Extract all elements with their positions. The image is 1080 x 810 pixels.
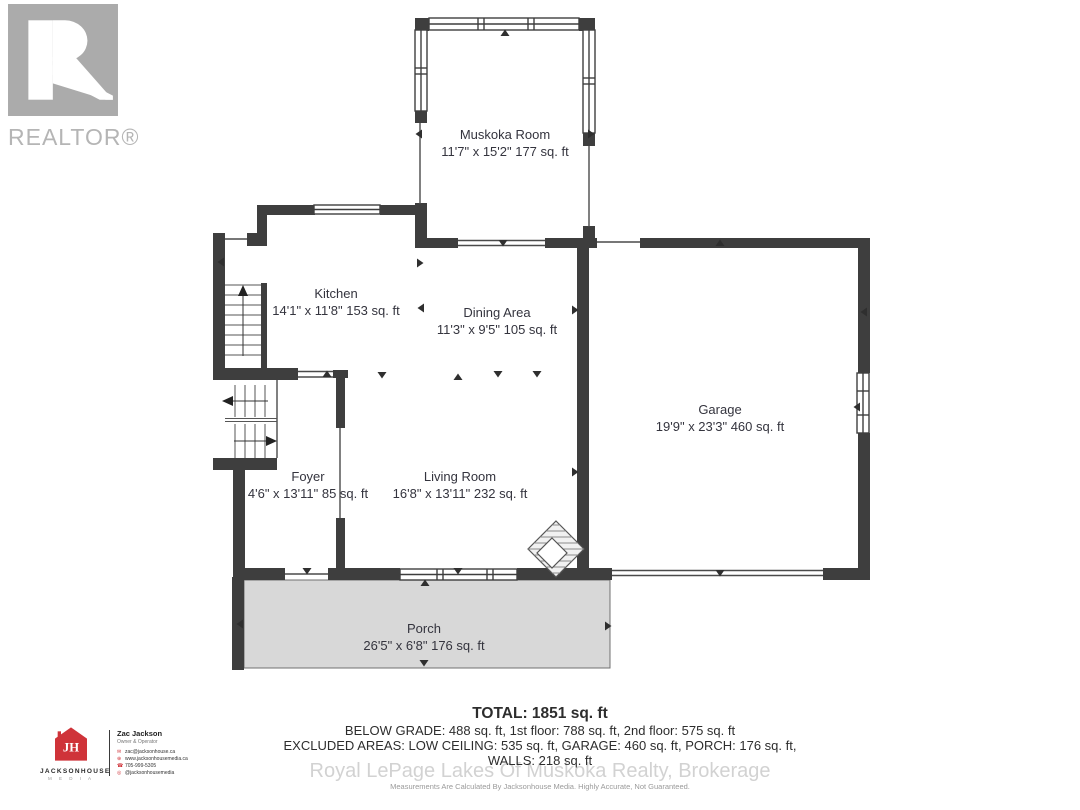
garage-label: Garage (698, 402, 741, 417)
porch-dims: 26'5" x 6'8" 176 sq. ft (363, 638, 485, 653)
door-openings (225, 123, 823, 576)
garage-dims: 19'9" x 23'3" 460 sq. ft (656, 419, 785, 434)
kitchen-label: Kitchen (314, 286, 357, 301)
agent-email: zac@jacksonhouse.ca (125, 749, 175, 755)
jh-monogram: JH (63, 740, 79, 754)
kitchen-dims: 14'1" x 11'8" 153 sq. ft (272, 303, 400, 318)
agent-website: www.jacksonhousemedia.ca (125, 756, 188, 762)
total-area: TOTAL: 1851 sq. ft (0, 704, 1080, 723)
agent-phone: 705-999-5305 (125, 763, 156, 769)
globe-icon: ⊕ (117, 756, 125, 763)
porch-label: Porch (407, 621, 441, 636)
agent-name: Zac Jackson (117, 729, 188, 738)
jacksonhouse-logo: JH JACKSONHOUSE M E D I A (40, 727, 102, 781)
agent-contact: Zac Jackson Owner & Operator ✉zac@jackso… (117, 727, 188, 777)
foyer-label: Foyer (291, 469, 325, 484)
email-icon: ✉ (117, 749, 125, 756)
stairs-up (225, 285, 261, 356)
house-icon: JH (55, 727, 87, 761)
company-name: JACKSONHOUSE (40, 768, 102, 775)
floorplan-drawing: Muskoka Room 11'7" x 15'2" 177 sq. ft Ki… (0, 0, 1080, 810)
living-room-label: Living Room (424, 469, 496, 484)
instagram-icon: ◎ (117, 770, 125, 777)
card-divider (109, 730, 110, 776)
phone-icon: ☎ (117, 763, 125, 770)
dining-area-dims: 11'3" x 9'5" 105 sq. ft (437, 322, 558, 337)
muskoka-room-dims: 11'7" x 15'2" 177 sq. ft (441, 144, 569, 159)
foyer-dims: 4'6" x 13'11" 85 sq. ft (248, 486, 369, 501)
muskoka-room-label: Muskoka Room (460, 127, 550, 142)
floorplan-page: REALTOR® (0, 0, 1080, 810)
stairs-down (222, 385, 277, 458)
living-room-dims: 16'8" x 13'11" 232 sq. ft (393, 486, 528, 501)
agent-instagram: @jacksonhousemedia (125, 770, 174, 776)
agent-phone-row: ☎705-999-5305 (117, 763, 188, 770)
walls (213, 18, 870, 670)
media-business-card: JH JACKSONHOUSE M E D I A Zac Jackson Ow… (40, 727, 188, 781)
agent-website-row: ⊕www.jacksonhousemedia.ca (117, 756, 188, 763)
agent-email-row: ✉zac@jacksonhouse.ca (117, 749, 188, 756)
measurement-disclaimer: Measurements Are Calculated By Jacksonho… (0, 782, 1080, 791)
company-sub: M E D I A (40, 776, 102, 781)
dining-area-label: Dining Area (463, 305, 531, 320)
agent-title: Owner & Operator (117, 739, 188, 745)
agent-instagram-row: ◎@jacksonhousemedia (117, 770, 188, 777)
